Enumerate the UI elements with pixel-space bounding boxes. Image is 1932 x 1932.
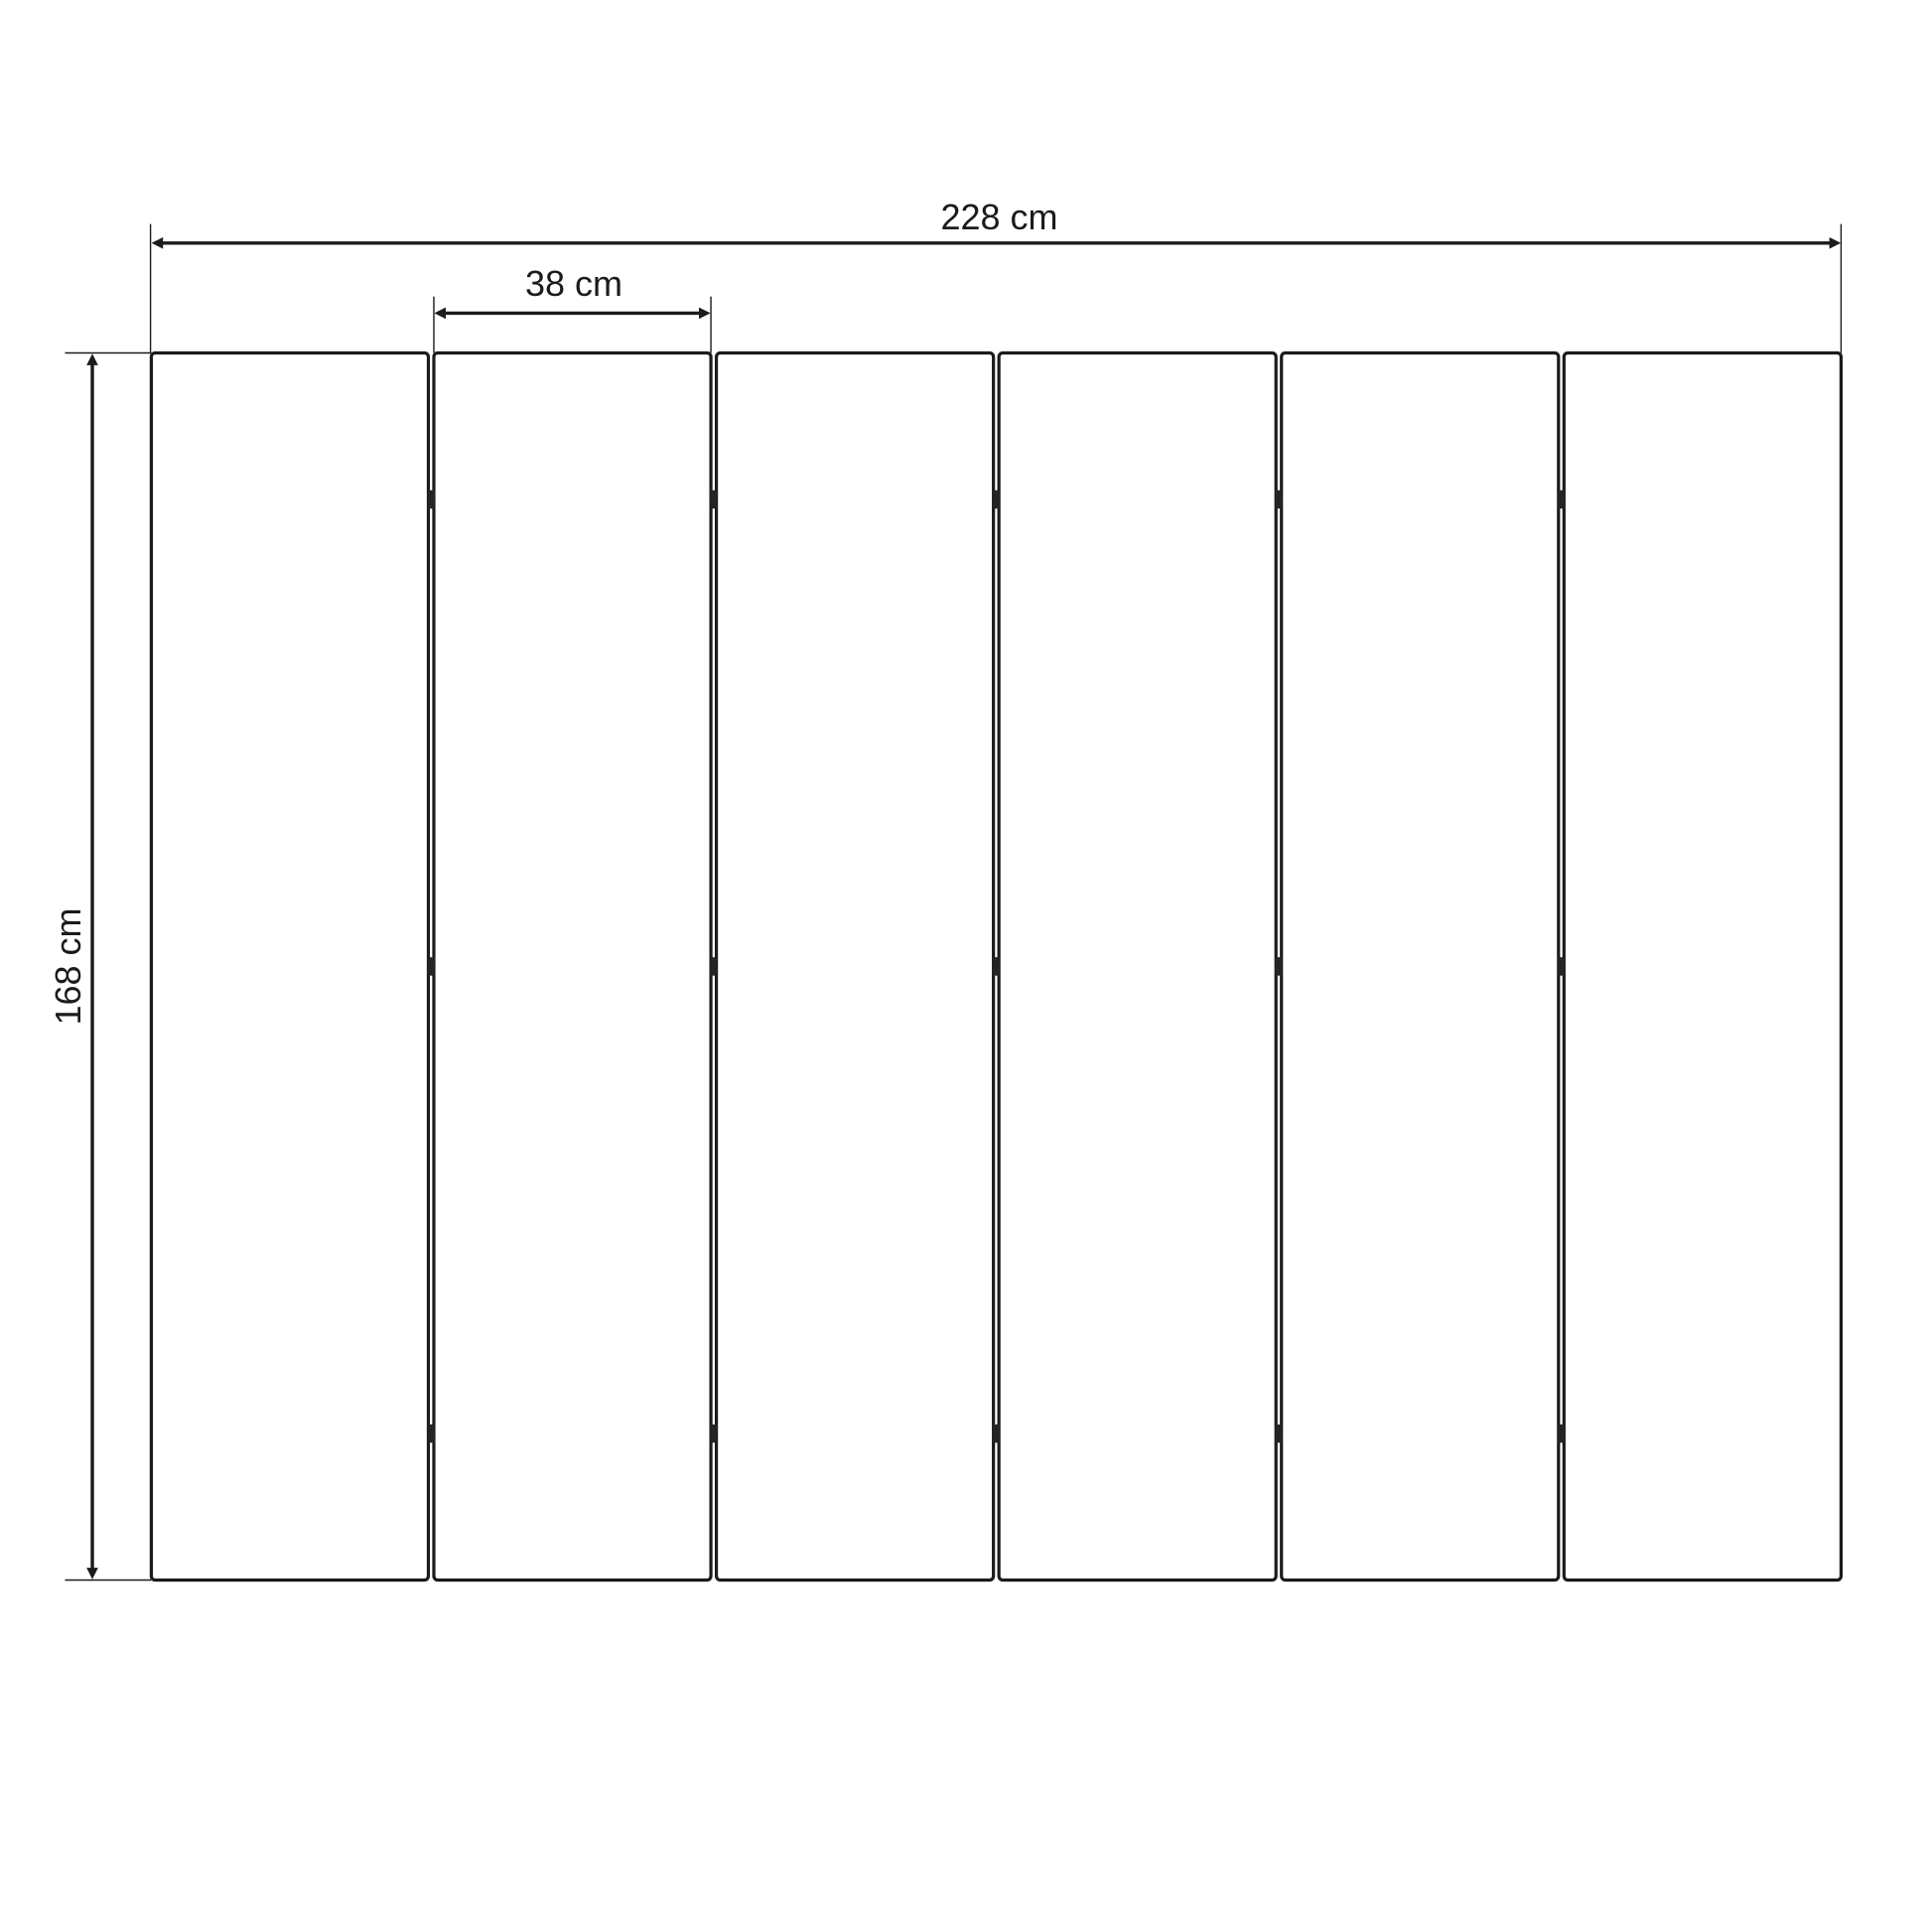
svg-text:38 cm: 38 cm [525,263,622,304]
svg-text:228 cm: 228 cm [940,197,1057,237]
svg-text:168 cm: 168 cm [48,907,88,1025]
